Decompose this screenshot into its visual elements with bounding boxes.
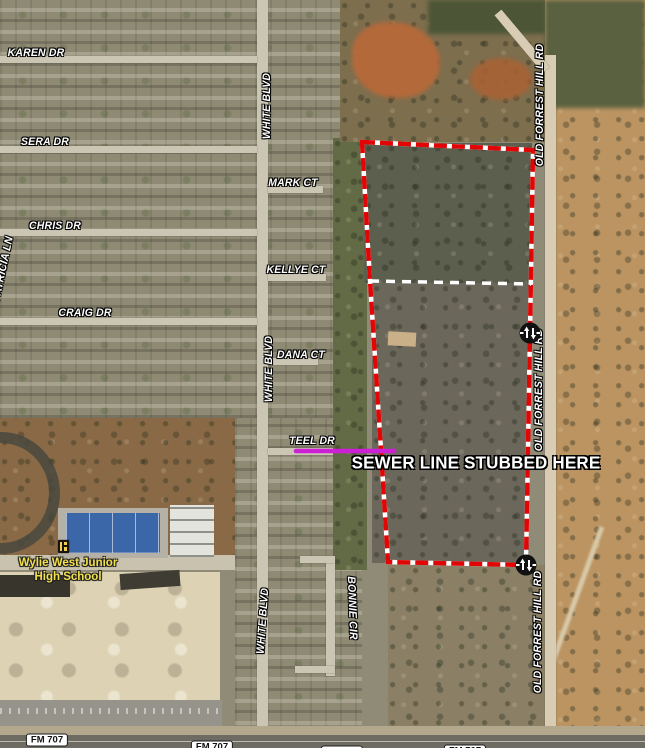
- highway-badge-fm707-1: FM 707: [26, 734, 68, 747]
- up-down-arrows-icon: [514, 553, 538, 577]
- utility-marker-north: [518, 321, 542, 345]
- aerial-map: KAREN DRSERA DRCHRIS DRPATRICIA LNCRAIG …: [0, 0, 645, 748]
- markers-layer: FM 707FM 707FM 707FM 707: [0, 0, 645, 748]
- highway-badge-fm707-2: FM 707: [191, 741, 233, 748]
- up-down-arrows-icon: [518, 321, 542, 345]
- utility-marker-south: [514, 553, 538, 577]
- highway-badge-fm707-4: FM 707: [444, 745, 486, 748]
